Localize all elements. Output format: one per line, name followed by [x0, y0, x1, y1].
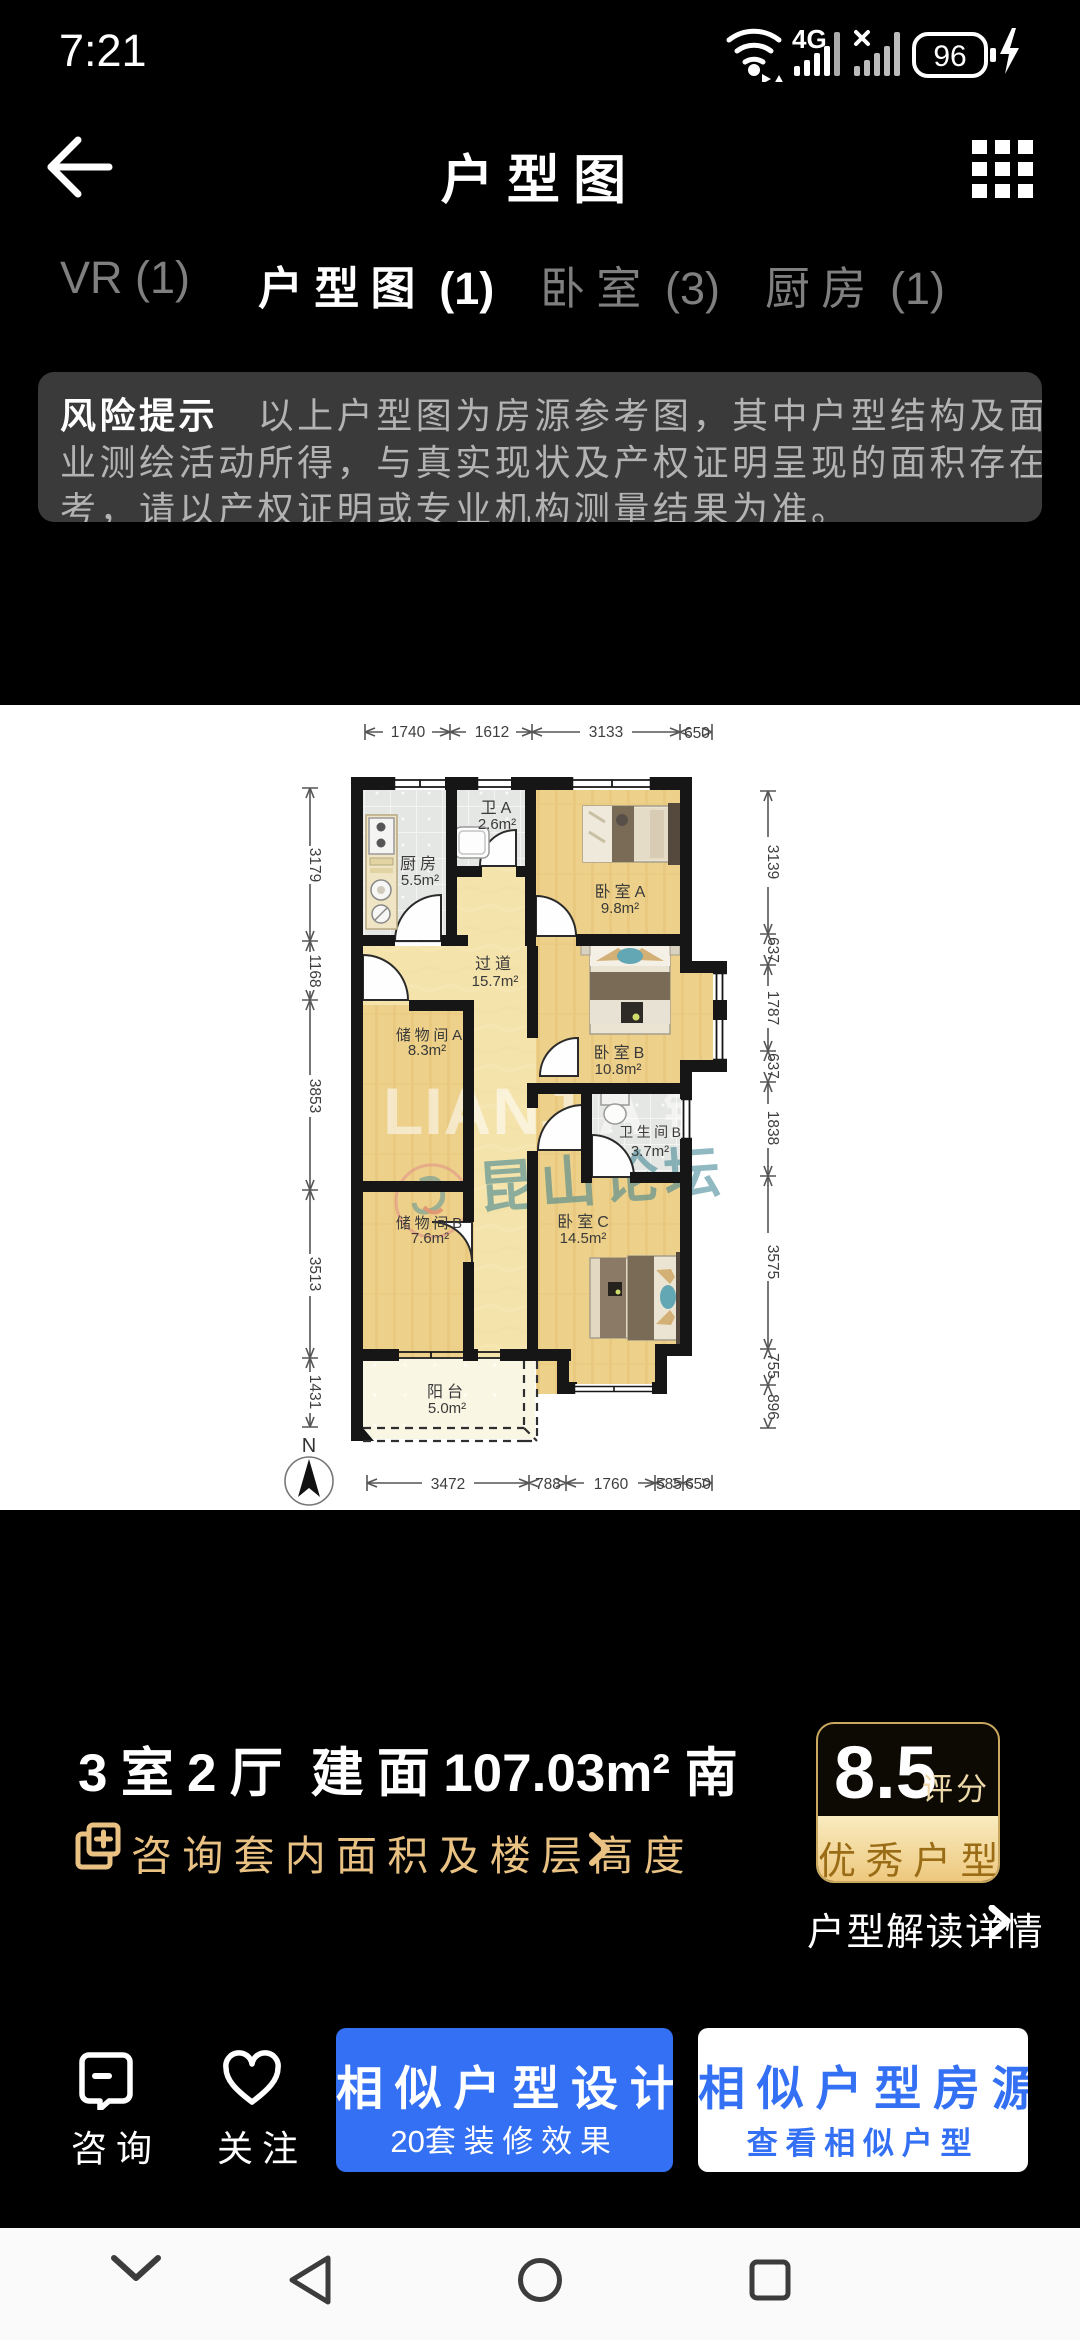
svg-text:3472: 3472 [431, 1476, 465, 1493]
svg-text:N: N [302, 1435, 316, 1457]
svg-text:1431: 1431 [306, 1375, 323, 1409]
svg-text:过道: 过道 [475, 955, 515, 973]
svg-text:3133: 3133 [589, 724, 623, 741]
svg-text:755: 755 [764, 1353, 781, 1379]
svg-text:4G: 4G [792, 24, 827, 54]
svg-text:896: 896 [764, 1394, 781, 1420]
svg-text:卫A: 卫A [481, 800, 512, 817]
svg-text:5.5m²: 5.5m² [401, 872, 439, 889]
svg-text:3.7m²: 3.7m² [631, 1143, 669, 1160]
svg-text:10.8m²: 10.8m² [595, 1061, 642, 1078]
svg-text:788: 788 [535, 1476, 561, 1493]
svg-text:15.7m²: 15.7m² [472, 973, 519, 990]
svg-text:9.8m²: 9.8m² [601, 900, 639, 917]
svg-text:637: 637 [764, 937, 781, 963]
svg-text:3179: 3179 [306, 848, 323, 882]
svg-text:卧室B: 卧室B [594, 1044, 645, 1062]
svg-text:3513: 3513 [306, 1257, 323, 1291]
svg-text:585: 585 [656, 1476, 682, 1493]
svg-text:1787: 1787 [764, 991, 781, 1025]
svg-text:637: 637 [764, 1053, 781, 1079]
svg-text:卫生间B: 卫生间B [619, 1124, 681, 1140]
svg-text:14.5m²: 14.5m² [560, 1230, 607, 1247]
svg-text:卧室C: 卧室C [557, 1213, 609, 1231]
svg-text:1740: 1740 [391, 724, 426, 741]
svg-text:3575: 3575 [764, 1245, 781, 1279]
svg-text:7.6m²: 7.6m² [411, 1230, 449, 1247]
svg-text:2.6m²: 2.6m² [478, 816, 516, 833]
svg-text:阳台: 阳台 [427, 1383, 467, 1401]
svg-text:1612: 1612 [475, 724, 509, 741]
svg-text:5.0m²: 5.0m² [428, 1400, 466, 1417]
svg-text:650: 650 [685, 1476, 711, 1493]
svg-text:1838: 1838 [764, 1111, 781, 1145]
svg-text:8.3m²: 8.3m² [408, 1042, 446, 1059]
svg-text:3139: 3139 [764, 845, 781, 879]
svg-text:3853: 3853 [306, 1079, 323, 1113]
svg-text:厨房: 厨房 [400, 855, 440, 873]
svg-text:1760: 1760 [594, 1476, 629, 1493]
svg-text:1168: 1168 [306, 954, 323, 987]
svg-text:96: 96 [933, 40, 966, 73]
svg-text:650: 650 [684, 725, 710, 742]
svg-text:卧室A: 卧室A [595, 883, 646, 901]
